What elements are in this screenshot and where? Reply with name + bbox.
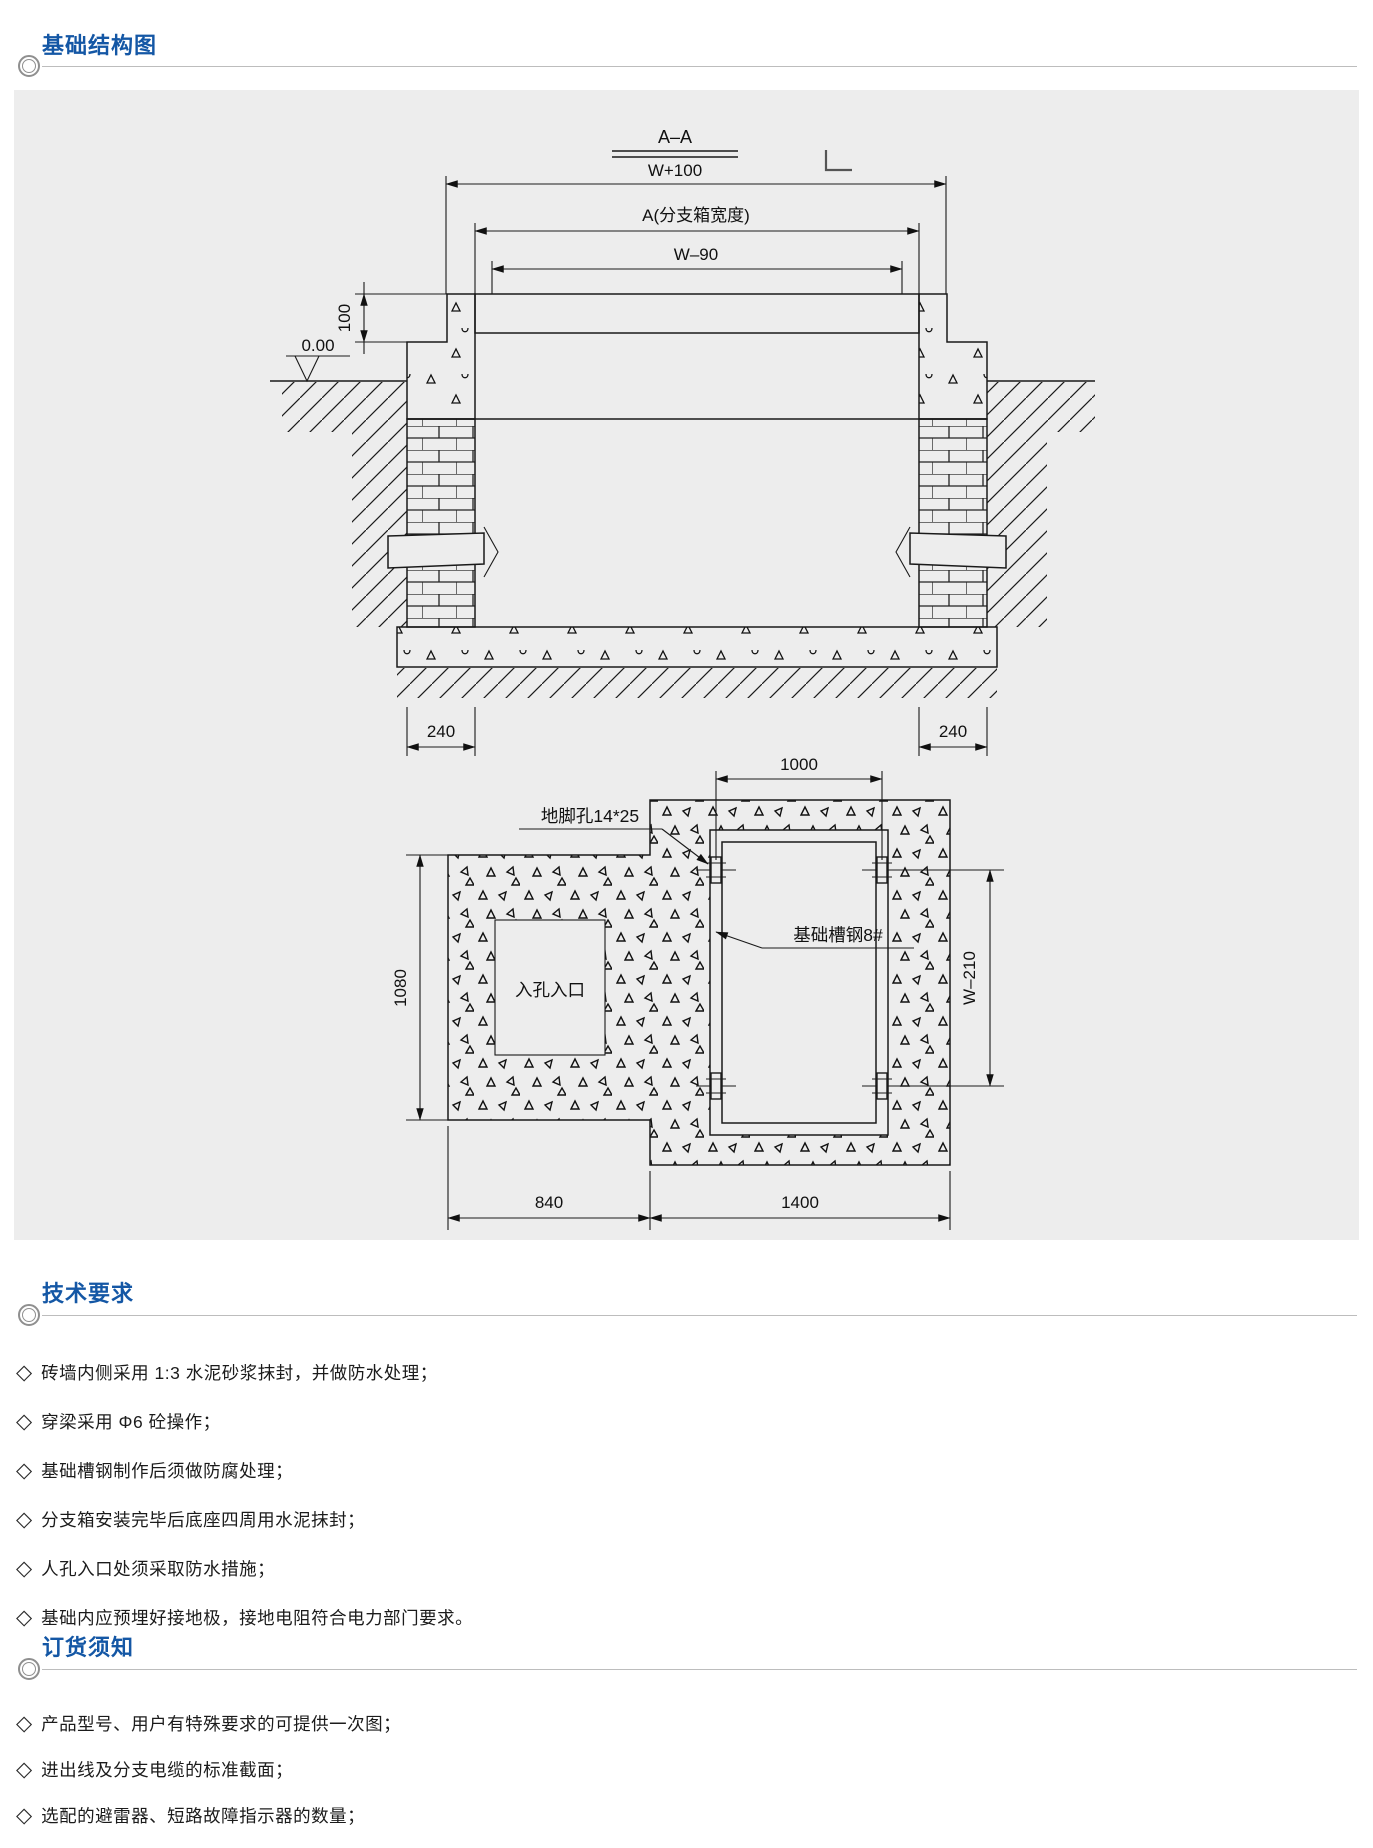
manhole-label: 入孔入口 (515, 980, 585, 1000)
list-item: ◇ 分支箱安装完毕后底座四周用水泥抹封； (16, 1495, 1353, 1544)
side-hatch-right (987, 432, 1047, 627)
dim-w-plus-100: W+100 (648, 161, 702, 180)
dim-cap-100: 100 (335, 304, 354, 332)
list-item: ◇ 穿梁采用 Φ6 砼操作； (16, 1397, 1353, 1446)
dim-w-minus-90: W–90 (674, 245, 718, 264)
section-view-label: A–A (658, 127, 692, 147)
diamond-bullet-icon: ◇ (16, 1509, 32, 1530)
dim-ext-100 (355, 294, 447, 342)
tech-item-text: 砖墙内侧采用 1:3 水泥砂浆抹封，并做防水处理； (41, 1360, 438, 1385)
channel-frame-inner (722, 842, 876, 1123)
channel-leader (716, 932, 762, 948)
list-item: ◇ 人孔入口处须采取防水措施； (16, 1544, 1353, 1593)
anchor-hole-label: 地脚孔14*25 (541, 806, 639, 826)
page-title: 基础结构图 (42, 28, 157, 60)
drawing-panel: A–A W+100 A(分支箱宽度) W–90 (14, 90, 1359, 1240)
tech-item-text: 基础内应预埋好接地极，接地电阻符合电力部门要求。 (41, 1605, 473, 1630)
list-item: ◇ 砖墙内侧采用 1:3 水泥砂浆抹封，并做防水处理； (16, 1348, 1353, 1397)
order-item-text: 选配的避雷器、短路故障指示器的数量； (41, 1803, 365, 1828)
left-shoulder-concrete (407, 294, 475, 419)
dim-ext-240 (407, 707, 987, 756)
dim-box-width: A(分支箱宽度) (642, 206, 750, 225)
right-shoulder-concrete (919, 294, 987, 419)
catalog-page: 基础结构图 (0, 0, 1373, 1848)
diamond-bullet-icon: ◇ (16, 1713, 32, 1734)
diamond-bullet-icon: ◇ (16, 1759, 32, 1780)
ring-icon (18, 55, 40, 77)
diamond-bullet-icon: ◇ (16, 1362, 32, 1383)
order-item-text: 进出线及分支电缆的标准截面； (41, 1757, 293, 1782)
level-0-00: 0.00 (301, 336, 334, 355)
list-item: ◇ 基础内应预埋好接地极，接地电阻符合电力部门要求。 (16, 1593, 1353, 1642)
section-divider (42, 1669, 1357, 1670)
list-item: ◇ 产品型号、用户有特殊要求的可提供一次图； (16, 1700, 1353, 1746)
dim-1000: 1000 (780, 755, 818, 774)
view-label-underline (612, 151, 738, 157)
plan-view: 入孔入口 (391, 755, 1004, 1230)
ring-icon (18, 1658, 40, 1680)
section-divider (42, 66, 1357, 67)
diamond-bullet-icon: ◇ (16, 1411, 32, 1432)
brick-wall-left (407, 419, 475, 627)
base-slab (397, 627, 997, 667)
diamond-bullet-icon: ◇ (16, 1805, 32, 1826)
brick-wall-right (919, 419, 987, 627)
dim-1080: 1080 (391, 969, 410, 1007)
ground-hatch-right (987, 382, 1095, 432)
diamond-bullet-icon: ◇ (16, 1558, 32, 1579)
dim-240-right: 240 (939, 722, 967, 741)
order-list: ◇ 产品型号、用户有特殊要求的可提供一次图； ◇ 进出线及分支电缆的标准截面； … (16, 1700, 1353, 1838)
section-divider (42, 1315, 1357, 1316)
tech-item-text: 穿梁采用 Φ6 砼操作； (41, 1409, 220, 1434)
tech-list: ◇ 砖墙内侧采用 1:3 水泥砂浆抹封，并做防水处理； ◇ 穿梁采用 Φ6 砼操… (16, 1348, 1353, 1642)
dim-w210: W–210 (960, 951, 979, 1005)
side-hatch-left (352, 432, 407, 627)
level-triangle-icon (295, 356, 319, 381)
diamond-bullet-icon: ◇ (16, 1460, 32, 1481)
diamond-bullet-icon: ◇ (16, 1607, 32, 1628)
dim-240-left: 240 (427, 722, 455, 741)
order-item-text: 产品型号、用户有特殊要求的可提供一次图； (41, 1711, 401, 1736)
channel-label: 基础槽钢8# (793, 925, 883, 945)
tech-item-text: 分支箱安装完毕后底座四周用水泥抹封； (41, 1507, 365, 1532)
channel-frame-outer (710, 830, 888, 1135)
dim-ext-1080 (406, 855, 448, 1120)
cap-slab (475, 294, 919, 333)
dim-840: 840 (535, 1193, 563, 1212)
list-item: ◇ 选配的避雷器、短路故障指示器的数量； (16, 1792, 1353, 1838)
section-view: A–A W+100 A(分支箱宽度) W–90 (270, 127, 1095, 756)
base-hatch (397, 668, 997, 698)
corner-mark-icon (826, 150, 852, 170)
list-item: ◇ 基础槽钢制作后须做防腐处理； (16, 1446, 1353, 1495)
ground-hatch-left (282, 382, 407, 432)
dim-ext-w90 (492, 261, 902, 294)
dim-1400: 1400 (781, 1193, 819, 1212)
tech-item-text: 人孔入口处须采取防水措施； (41, 1556, 275, 1581)
ring-icon (18, 1304, 40, 1326)
list-item: ◇ 进出线及分支电缆的标准截面； (16, 1746, 1353, 1792)
dim-ext-w100 (446, 176, 946, 294)
order-title: 订货须知 (42, 1630, 134, 1662)
foundation-drawing: A–A W+100 A(分支箱宽度) W–90 (14, 90, 1359, 1240)
tech-item-text: 基础槽钢制作后须做防腐处理； (41, 1458, 293, 1483)
tech-title: 技术要求 (42, 1276, 134, 1308)
